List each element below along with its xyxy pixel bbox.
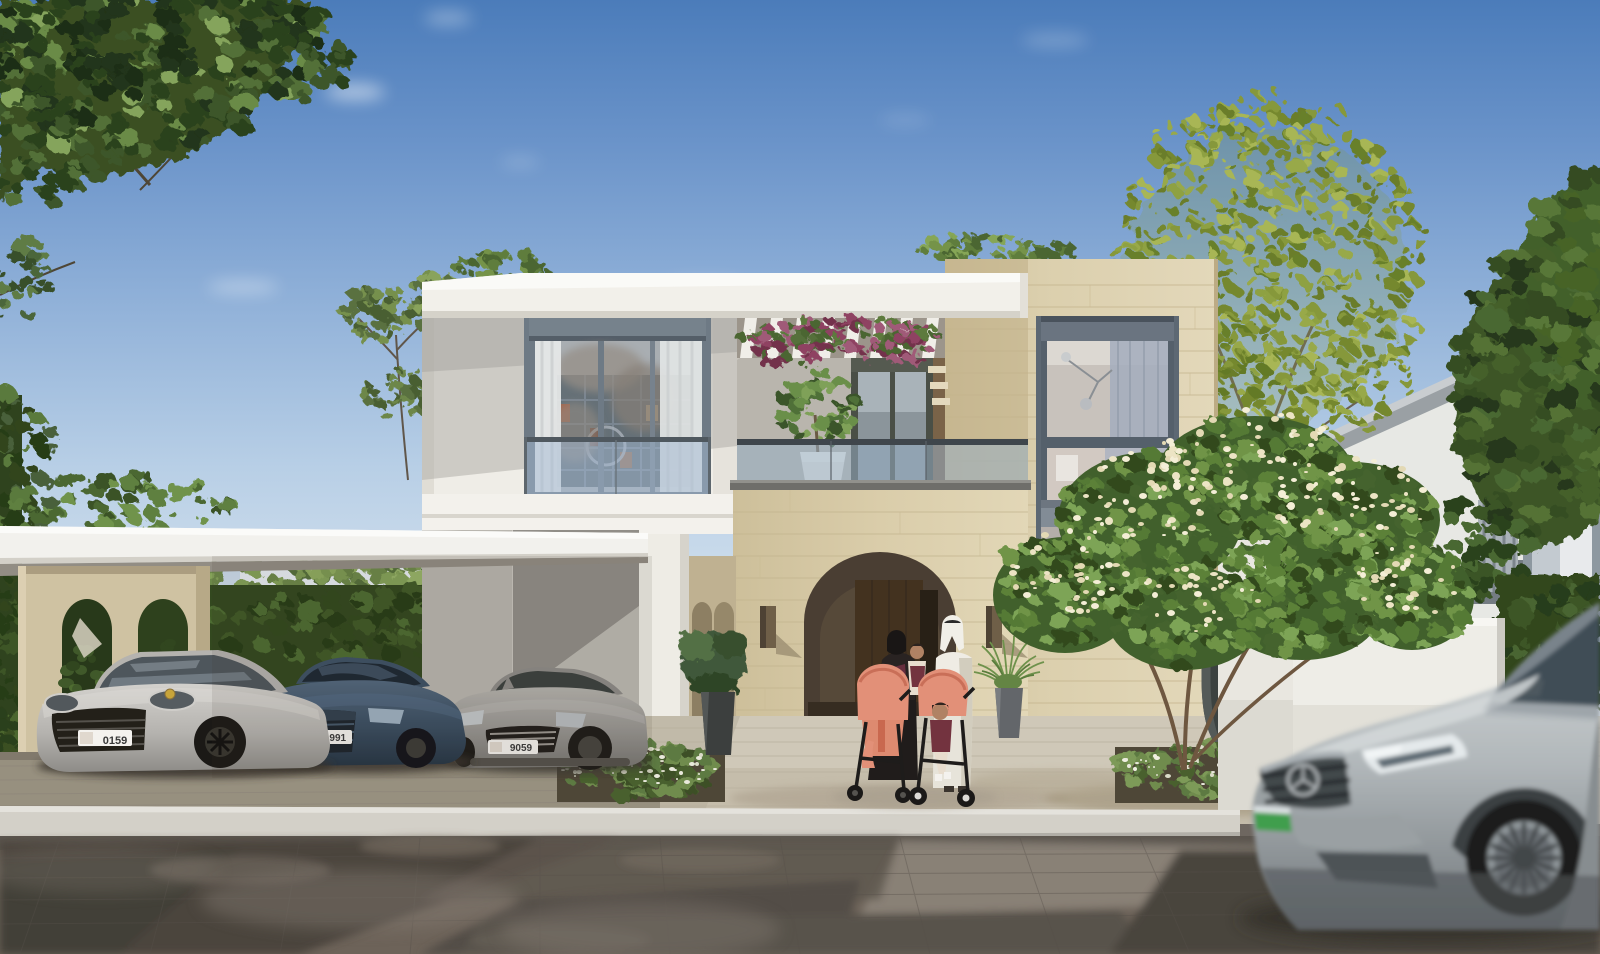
svg-text:0159: 0159 [103, 735, 127, 747]
